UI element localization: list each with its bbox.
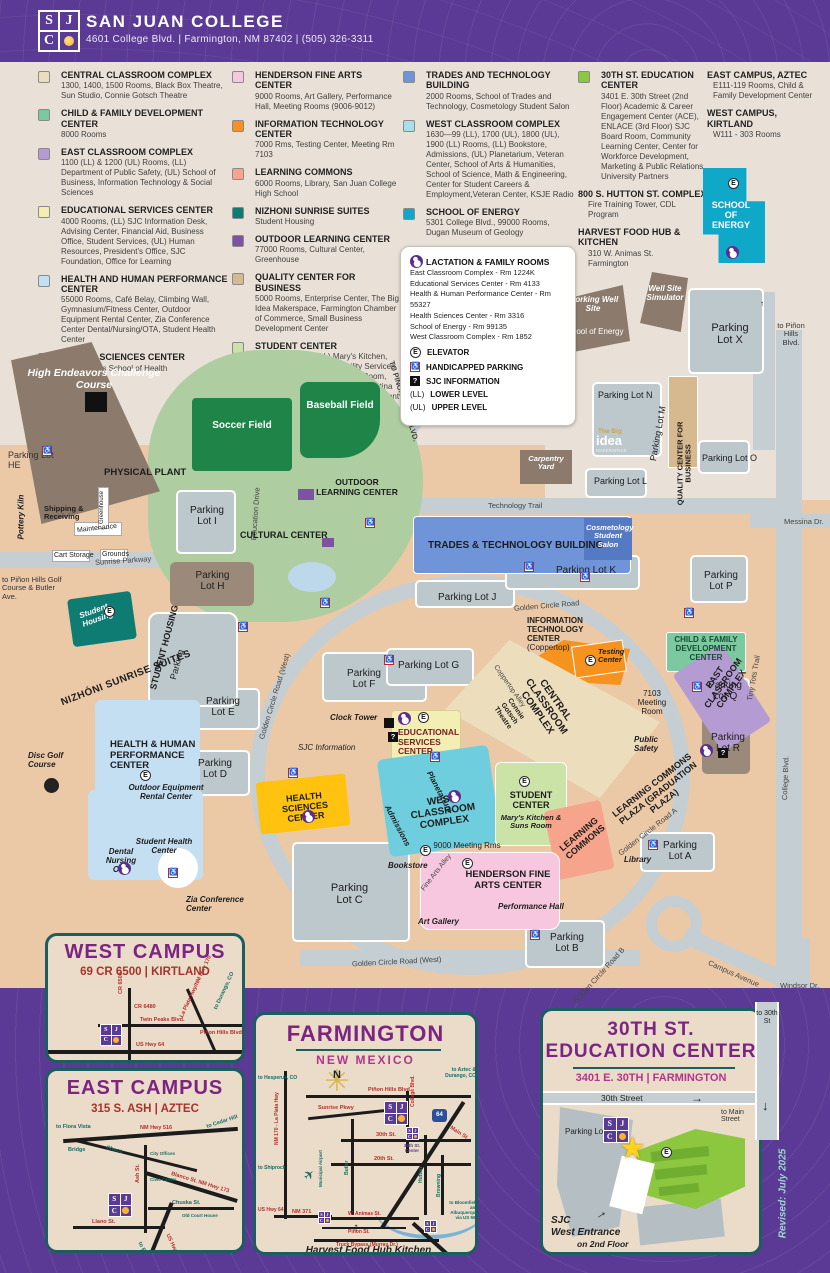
elevator-icon: E	[410, 347, 421, 358]
entrance-label1: SJC	[551, 1215, 570, 1226]
legend-col-1: CENTRAL CLASSROOM COMPLEX1300, 1400, 150…	[38, 70, 228, 391]
soe-building-label: SCHOOL OF ENERGY	[706, 200, 756, 230]
high-endeavors-label: High Endeavors Challenge Course	[24, 368, 164, 392]
road-label: Bridge	[68, 1147, 85, 1153]
road-label: to Shiprock	[258, 1165, 286, 1171]
road-label: Llano St.	[92, 1219, 115, 1225]
elevator-icon: E	[418, 712, 429, 723]
logo-letter-s: S	[40, 12, 58, 30]
legend-desc: 77000 Rooms, Cultural Center, Greenhouse	[255, 245, 400, 265]
handicapped-icon: ♿	[410, 362, 420, 372]
lactation-icon	[118, 862, 131, 875]
entrance-star: ★	[619, 1131, 646, 1166]
legend-entry: OUTDOOR LEARNING CENTER77000 Rooms, Cult…	[232, 234, 400, 265]
soccer-field	[192, 398, 292, 471]
technology-trail-label: Technology Trail	[488, 502, 542, 510]
legend-desc: 4000 Rooms, (LL) SJC Information Desk, A…	[61, 217, 228, 267]
lactation-room: School of Energy - Rm 99135	[410, 322, 566, 333]
sjc-info-key: ?SJC INFORMATION	[410, 376, 566, 386]
legend-entry: LEARNING COMMONS6000 Rooms, Library, San…	[232, 167, 400, 198]
inset-title-line2: EDUCATION CENTER	[543, 1041, 759, 1063]
legend-desc: 1300, 1400, 1500 Rooms, Black Box Theatr…	[61, 81, 228, 101]
pond	[288, 562, 336, 592]
performance-hall-label: Performance Hall	[498, 903, 564, 912]
legend-desc: Student Housing	[255, 217, 400, 227]
poi-label: Municipal Airport	[318, 1150, 323, 1187]
road-label: Piñon Hills Blvd.	[368, 1087, 411, 1093]
legend-desc: 2000 Rooms, School of Trades and Technol…	[426, 92, 575, 112]
clock-tower-icon	[384, 718, 394, 728]
revised-date: Revised: July 2025	[778, 1139, 789, 1249]
lot-i-label: Parking Lot I	[186, 505, 228, 527]
cosmetology-label: Cosmetology Student Salon	[586, 524, 630, 549]
lot-l-label: Parking Lot L	[594, 476, 647, 486]
lot-f-label: Parking Lot F	[340, 668, 388, 690]
baseball-field-label: Baseball Field	[305, 400, 375, 411]
road-label: to Bloomfield and Albuquerque via US 550	[448, 1200, 478, 1220]
road-label: US Hwy 64	[258, 1207, 284, 1213]
henderson-label: HENDERSON FINE ARTS CENTER	[462, 870, 554, 891]
handicap-icon: ♿	[430, 752, 440, 762]
sjc-information-label: SJC Information	[298, 744, 355, 753]
legend-name: 30TH ST. EDUCATION CENTER	[601, 70, 708, 91]
legend-desc: 3401 E. 30th Street (2nd Floor) Academic…	[601, 92, 708, 182]
legend-desc: E111-119 Rooms, Child & Family Developme…	[713, 81, 825, 101]
legend-name: OUTDOOR LEARNING CENTER	[255, 234, 400, 244]
quality-center-label: QUALITY CENTER FOR BUSINESS	[677, 418, 694, 508]
legend-entry: EDUCATIONAL SERVICES CENTER4000 Rooms, (…	[38, 205, 228, 266]
handicap-icon: ♿	[238, 622, 248, 632]
compass-n: N	[320, 1069, 354, 1081]
legend-entry: EAST CLASSROOM COMPLEX1100 (LL) & 1200 (…	[38, 147, 228, 198]
legend-name: WEST CAMPUS, KIRTLAND	[707, 108, 825, 129]
road-label: Ash St.	[135, 1164, 141, 1183]
handicap-icon: ♿	[42, 446, 52, 456]
entrance-label2: West Entrance	[551, 1227, 620, 1238]
elevator-icon: E	[462, 858, 473, 869]
map-key-box: LACTATION & FAMILY ROOMS East Classroom …	[400, 246, 576, 426]
legend-desc: Fire Training Tower, CDL Program	[588, 200, 708, 220]
legend-desc: 5000 Rooms, Enterprise Center, The Big I…	[255, 294, 400, 334]
logo-letter-j: J	[60, 12, 78, 30]
street-label: 30th Street	[601, 1093, 643, 1103]
road-label: Butler	[344, 1161, 350, 1175]
lactation-title: LACTATION & FAMILY ROOMS	[426, 257, 549, 267]
it-label-4: (Coppertop)	[527, 644, 570, 653]
road-label: NM 170 - La Plata Hwy	[274, 1092, 280, 1145]
lot-e-label: Parking Lot E	[200, 696, 246, 718]
road-label: to Aztec & Durango, CO	[434, 1067, 476, 1079]
legend-entry: INFORMATION TECHNOLOGY CENTER7000 Rms, T…	[232, 119, 400, 161]
sjc-logo: S J C	[38, 10, 80, 52]
outdoor-learning-building	[298, 489, 314, 500]
legend-swatch	[232, 273, 244, 285]
to-pinon-right-label: to Piñon Hills Blvd.	[777, 322, 805, 347]
thirtieth-street-road	[543, 1091, 762, 1105]
legend-entry: TRADES AND TECHNOLOGY BUILDING2000 Rooms…	[403, 70, 575, 112]
legend-desc: 5301 College Blvd., 99000 Rooms, Dugan M…	[426, 218, 575, 238]
inset-road	[148, 1207, 234, 1210]
legend-entry: NIZHONI SUNRISE SUITESStudent Housing	[232, 206, 400, 227]
sjc-mini-logo: SJC	[424, 1220, 437, 1233]
legend-swatch	[232, 71, 244, 83]
sjc-mini-logo: SJC	[100, 1024, 122, 1046]
legend-name: INFORMATION TECHNOLOGY CENTER	[255, 119, 400, 140]
legend-entry: WEST CAMPUS, KIRTLANDW111 - 303 Rooms	[707, 108, 825, 140]
legend-desc: 6000 Rooms, Library, San Juan College Hi…	[255, 179, 400, 199]
marys-label: Mary's Kitchen & Suns Room	[498, 814, 564, 831]
inset-road	[144, 1145, 147, 1233]
road-label: Twin Peaks Blvd.	[140, 1017, 185, 1023]
legend-entry: 30TH ST. EDUCATION CENTER3401 E. 30th St…	[578, 70, 708, 182]
upper-level-key: (UL)UPPER LEVEL	[410, 403, 566, 412]
messina-label: Messina Dr.	[784, 518, 824, 526]
poi-label: Old Court House	[182, 1213, 218, 1218]
testing-center-label: Testing Center	[598, 648, 638, 665]
lot-c-label: Parking Lot C	[322, 882, 377, 907]
inset-road	[73, 1226, 165, 1229]
inset-subtitle: 3401 E. 30TH | FARMINGTON	[543, 1072, 759, 1084]
legend-col-5: EAST CAMPUS, AZTECE111-119 Rooms, Child …	[707, 70, 825, 147]
big-idea-label3: MAKERSPACE	[596, 448, 627, 453]
lot-x-label: Parking Lot X	[706, 322, 754, 347]
logo-letter-c: C	[40, 32, 58, 50]
legend-entry: EAST CAMPUS, AZTECE111-119 Rooms, Child …	[707, 70, 825, 101]
legend-desc: 7000 Rms, Testing Center, Meeting Rm 710…	[255, 140, 400, 160]
legend-name: EDUCATIONAL SERVICES CENTER	[61, 205, 228, 215]
inset-title: EAST CAMPUS	[48, 1077, 242, 1100]
legend-entry: SCHOOL OF ENERGY5301 College Blvd., 9900…	[403, 207, 575, 238]
inset-road	[306, 1095, 471, 1098]
inset-road	[324, 1217, 419, 1220]
lot-h-label: Parking Lot H	[190, 570, 235, 592]
inset-road	[351, 1119, 354, 1215]
title-divider	[296, 1049, 441, 1051]
legend-name: HARVEST FOOD HUB & KITCHEN	[578, 227, 708, 248]
lot-g-label: Parking Lot G	[398, 660, 459, 671]
legend-name: HENDERSON FINE ARTS CENTER	[255, 70, 400, 91]
trades-label: TRADES & TECHNOLOGY BUILDING	[428, 540, 588, 551]
legend-entry: HARVEST FOOD HUB & KITCHEN310 W. Animas …	[578, 227, 708, 269]
sjc-mini-logo: SJC	[384, 1101, 408, 1125]
bookstore-label: Bookstore	[388, 862, 428, 871]
legend-col-3: TRADES AND TECHNOLOGY BUILDING2000 Rooms…	[403, 70, 575, 245]
elevator-icon: E	[519, 776, 530, 787]
sjc-mini-logo: SJC	[406, 1127, 419, 1140]
harvest-arrow: →	[347, 1222, 361, 1234]
road-label: CR 6500	[118, 972, 124, 994]
lactation-room: Health Sciences Center - Rm 3316	[410, 311, 566, 322]
inset-road	[48, 1050, 245, 1054]
inset-title: WEST CAMPUS	[48, 941, 242, 964]
well-site-label: Well Site Simulator	[644, 285, 686, 303]
meeting-9000-label: 9000 Meeting Rms	[430, 842, 504, 851]
lower-level-key: (LL)LOWER LEVEL	[410, 390, 566, 399]
title-divider	[573, 1067, 735, 1069]
road-label: US Hwy 550	[165, 1233, 184, 1253]
legend-entry: 800 S. HUTTON ST. COMPLEXFire Training T…	[578, 189, 708, 220]
inset-subtitle: 315 S. ASH | AZTEC	[48, 1103, 242, 1115]
legend-swatch	[403, 120, 415, 132]
outdoor-equip-label: Outdoor Equipment Rental Center	[124, 784, 208, 802]
zia-label: Zia Conference Center	[186, 896, 264, 914]
legend-entry: CHILD & FAMILY DEVELOPMENT CENTER8000 Ro…	[38, 108, 228, 140]
lot-d-label: Parking Lot D	[192, 758, 238, 780]
elevator-icon: E	[728, 178, 739, 189]
inset-subtitle: 69 CR 6500 | KIRTLAND	[48, 966, 242, 978]
disc-golf-icon	[44, 778, 59, 793]
legend-swatch	[232, 120, 244, 132]
legend-swatch	[38, 148, 50, 160]
lot-j-label: Parking Lot J	[438, 592, 496, 603]
carpentry-label: Carpentry Yard	[524, 455, 568, 472]
legend-swatch	[578, 71, 590, 83]
airport-icon: ✈	[300, 1165, 319, 1184]
lactation-icon	[398, 712, 411, 725]
legend-swatch	[38, 275, 50, 287]
legend-entry: HENDERSON FINE ARTS CENTER9000 Rooms, Ar…	[232, 70, 400, 112]
legend-swatch	[38, 71, 50, 83]
inset-30th-street: 30TH ST. EDUCATION CENTER 3401 E. 30TH |…	[540, 1008, 762, 1255]
legend-entry: WEST CLASSROOM COMPLEX1630—99 (LL), 1700…	[403, 119, 575, 200]
hhpc-label: HEALTH & HUMAN PERFORMANCE CENTER	[110, 740, 196, 772]
legend-desc: W111 - 303 Rooms	[713, 130, 825, 140]
handicap-icon: ♿	[320, 598, 330, 608]
lactation-room: Health & Human Performance Center - Rm 5…	[410, 289, 566, 310]
art-gallery-label: Art Gallery	[418, 918, 459, 927]
inset-farmington: FARMINGTON NEW MEXICO ✳ N to Hesperus, C…	[253, 1012, 478, 1255]
legend-name: WEST CLASSROOM COMPLEX	[426, 119, 575, 129]
lot-b-label: Parking Lot B	[544, 932, 590, 954]
road-label: Hutton	[418, 1167, 424, 1183]
handicapped-key: ♿HANDICAPPED PARKING	[410, 362, 566, 372]
info-icon: ?	[718, 748, 728, 758]
elevator-icon: E	[661, 1147, 672, 1158]
shipping-label: Shipping & Receiving	[44, 505, 88, 522]
road-label: Browning	[436, 1174, 442, 1197]
campus-map-page: S J C SAN JUAN COLLEGE 4601 College Blvd…	[0, 0, 830, 1273]
road-label: US Hwy 64	[136, 1042, 164, 1048]
poi-label: 30th St. Center	[399, 1143, 425, 1153]
lot-a-label: Parking Lot A	[656, 840, 704, 862]
legend-desc: 1630—99 (LL), 1700 (UL), 1800 (UL), 1900…	[426, 130, 575, 200]
handicap-icon: ♿	[648, 840, 658, 850]
challenge-structure	[85, 392, 107, 412]
legend-swatch	[232, 168, 244, 180]
road-label: to Flora Vista	[56, 1124, 91, 1130]
elevator-icon: E	[420, 845, 431, 856]
to-pinon-arrow: ↑	[760, 300, 764, 309]
info-icon: ?	[388, 732, 398, 742]
road-label: to Hesperus, CO	[258, 1075, 297, 1081]
legend-name: LEARNING COMMONS	[255, 167, 400, 177]
road-college-blvd	[776, 330, 802, 1008]
handicap-icon: ♿	[692, 682, 702, 692]
legend-swatch	[232, 207, 244, 219]
to-main-arrow: →	[691, 1091, 703, 1105]
elevator-key: EELEVATOR	[410, 347, 566, 358]
legend-entry: CENTRAL CLASSROOM COMPLEX1300, 1400, 150…	[38, 70, 228, 101]
legend-name: NIZHONI SUNRISE SUITES	[255, 206, 400, 216]
to-30th-arrow: ↓	[762, 1098, 769, 1113]
cultural-center-label: CULTURAL CENTER	[240, 530, 328, 540]
legend-desc: 9000 Rooms, Art Gallery, Performance Hal…	[255, 92, 400, 112]
legend-name: 800 S. HUTTON ST. COMPLEX	[578, 189, 708, 199]
lactation-icon	[726, 246, 739, 259]
sjc-mini-logo: SJC	[318, 1211, 331, 1224]
baseball-field	[300, 382, 380, 458]
handicap-icon: ♿	[168, 868, 178, 878]
legend-swatch	[403, 208, 415, 220]
to-30th-label: to 30th St	[755, 1010, 779, 1027]
road-technology-trail	[385, 498, 777, 514]
legend-name: CHILD & FAMILY DEVELOPMENT CENTER	[61, 108, 228, 129]
handicap-icon: ♿	[580, 572, 590, 582]
page-address: 4601 College Blvd. | Farmington, NM 8740…	[86, 34, 374, 45]
clock-tower-arrow: →	[370, 713, 378, 722]
legend-swatch	[403, 71, 415, 83]
handicap-icon: ♿	[524, 562, 534, 572]
legend-name: QUALITY CENTER FOR BUSINESS	[255, 272, 400, 293]
pottery-kiln-label: Pottery Kiln	[18, 479, 27, 539]
handicap-icon: ♿	[530, 930, 540, 940]
lactation-icon	[700, 744, 713, 757]
physical-plant-label: PHYSICAL PLANT	[104, 468, 164, 479]
inset-title: FARMINGTON	[256, 1021, 475, 1047]
lot-n-label: Parking Lot N	[598, 390, 653, 400]
windsor-label: Windsor Dr.	[780, 982, 819, 990]
lactation-title-row: LACTATION & FAMILY ROOMS	[410, 255, 566, 268]
lower-lot	[636, 1199, 725, 1246]
legend-desc: 310 W. Animas St. Farmington	[588, 249, 668, 269]
elevator-icon: E	[585, 655, 596, 666]
greenhouse-label: Greenhouse	[99, 491, 106, 524]
legend-entry: HEALTH AND HUMAN PERFORMANCE CENTER55000…	[38, 274, 228, 346]
inset-west-campus: WEST CAMPUS 69 CR 6500 | KIRTLAND CR 650…	[45, 933, 245, 1063]
entrance-label3: on 2nd Floor	[577, 1239, 628, 1249]
handicap-icon: ♿	[365, 518, 375, 528]
legend-swatch	[38, 206, 50, 218]
road-label: NM 371	[292, 1209, 311, 1215]
road-label: W. Animas St.	[348, 1211, 381, 1217]
road-label: CR 6480	[134, 1004, 156, 1010]
outdoor-learning-label: OUTDOOR LEARNING CENTER	[316, 478, 398, 497]
meeting-7103-label: 7103 Meeting Room	[628, 690, 676, 717]
legend-name: SCHOOL OF ENERGY	[426, 207, 575, 217]
handicap-icon: ♿	[684, 608, 694, 618]
lot-o-label: Parking Lot O	[702, 453, 757, 463]
elevator-icon: E	[140, 770, 151, 781]
road-label: Chuska St.	[172, 1200, 200, 1206]
elevator-icon: E	[104, 606, 115, 617]
legend-desc: 55000 Rooms, Café Belay, Climbing Wall, …	[61, 295, 228, 345]
inset-subtitle: NEW MEXICO	[256, 1053, 475, 1067]
cart-storage-label: Cart Storage	[54, 552, 94, 560]
road-label: 20th St.	[374, 1156, 394, 1162]
public-safety-label: Public Safety	[634, 736, 674, 754]
lactation-room: Educational Services Center - Rm 4133	[410, 279, 566, 290]
legend-name: TRADES AND TECHNOLOGY BUILDING	[426, 70, 575, 91]
inset-east-campus: EAST CAMPUS 315 S. ASH | AZTEC to Flora …	[45, 1068, 245, 1253]
road-label: 30th St.	[376, 1132, 396, 1138]
page-title: SAN JUAN COLLEGE	[86, 12, 284, 32]
road-label: Chaco	[106, 1145, 124, 1155]
inset-road	[284, 1071, 287, 1219]
handicap-ic: ♿	[288, 768, 298, 778]
legend-col-4: 30TH ST. EDUCATION CENTER3401 E. 30th St…	[578, 70, 708, 276]
legend-swatch	[232, 235, 244, 247]
logo-dot	[60, 32, 78, 50]
big-idea-label2: idea	[596, 434, 622, 449]
legend-entry: QUALITY CENTER FOR BUSINESS5000 Rooms, E…	[232, 272, 400, 334]
legend-name: CENTRAL CLASSROOM COMPLEX	[61, 70, 228, 80]
road-label: College Blvd.	[410, 1075, 416, 1107]
sjc-mini-logo: SJC	[108, 1193, 132, 1217]
lot-p-label: Parking Lot P	[698, 570, 744, 592]
road-label: Piñon Hills Blvd.	[200, 1030, 243, 1036]
poi-label: Civic Center	[150, 1177, 176, 1182]
lactation-icon	[302, 810, 315, 823]
to-golf-label: to Piñon Hills Golf Course & Butler Ave.	[2, 576, 64, 601]
lot-he-label: Parking Lot HE	[8, 450, 60, 470]
harvest-label: Harvest Food Hub Kitchen	[286, 1245, 451, 1255]
library-label: Library	[624, 856, 651, 865]
road-label: NM Hwy 516	[140, 1125, 172, 1131]
info-icon: ?	[410, 376, 420, 386]
lactation-icon	[448, 790, 461, 803]
legend-name: EAST CAMPUS, AZTEC	[707, 70, 825, 80]
student-center-label: STUDENT CENTER	[502, 790, 560, 810]
poi-label: City Offices	[150, 1151, 175, 1156]
legend-swatch	[38, 109, 50, 121]
legend-name: HEALTH AND HUMAN PERFORMANCE CENTER	[61, 274, 228, 295]
lactation-room: West Classroom Complex - Rm 1852	[410, 332, 566, 343]
lot-r-label: Parking Lot R	[708, 732, 748, 754]
us64-shield: 64	[432, 1109, 447, 1122]
inset-title-line1: 30TH ST.	[543, 1019, 759, 1041]
road-roundabout	[646, 896, 702, 952]
disc-golf-label: Disc Golf Course	[28, 752, 72, 770]
legend-desc: 8000 Rooms	[61, 130, 228, 140]
legend-desc: 1100 (LL) & 1200 (UL) Rooms, (LL) Depart…	[61, 158, 228, 198]
legend-name: EAST CLASSROOM COMPLEX	[61, 147, 228, 157]
college-blvd-label: College Blvd.	[781, 756, 791, 800]
road-label: Sunrise Pkwy	[318, 1105, 354, 1111]
soccer-field-label: Soccer Field	[202, 420, 282, 431]
lactation-icon	[410, 255, 423, 268]
lactation-room: East Classroom Complex - Rm 1224K	[410, 268, 566, 279]
handicap-icon: ♿	[384, 655, 394, 665]
